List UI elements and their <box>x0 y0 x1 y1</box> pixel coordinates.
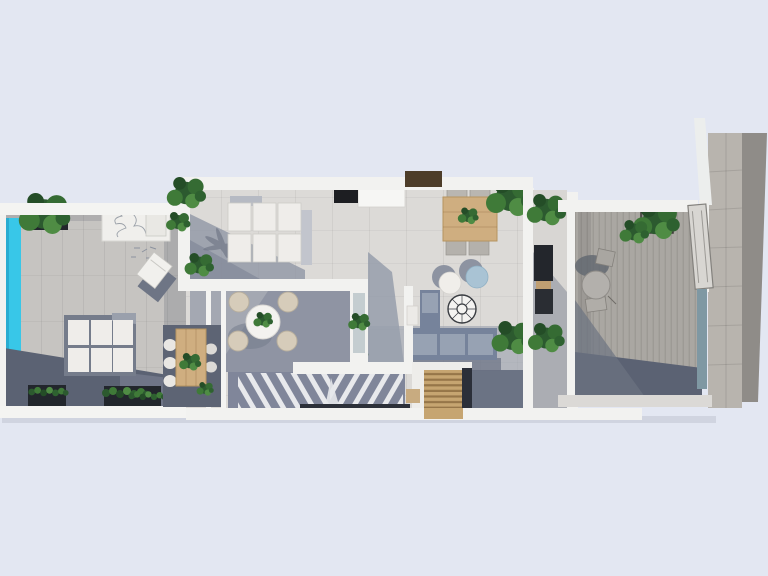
corridor-unit-1 <box>534 245 553 281</box>
right-terrace <box>558 200 713 407</box>
corridor-unit-2 <box>535 289 553 314</box>
wood-stairs-slot <box>462 368 472 412</box>
pergola-beam <box>405 171 442 187</box>
deck-top-wall <box>558 200 698 212</box>
hanging-chair <box>448 295 476 323</box>
entry-bench <box>406 389 420 403</box>
terrace-top-wall <box>0 203 186 215</box>
stone-path-floor <box>708 133 742 408</box>
deck-bottom-wall <box>558 395 712 407</box>
stair-top-wall <box>293 362 412 374</box>
sofa-side-table <box>407 306 418 325</box>
glass-mullion-2 <box>221 291 226 412</box>
patio-top-wall <box>180 279 368 291</box>
floorplan-render <box>0 0 768 576</box>
terrace-bottom-wall <box>0 406 186 418</box>
wood-dining-table-center <box>443 184 497 255</box>
planter-bottom-mid <box>102 386 166 407</box>
pouf-white <box>439 272 461 294</box>
white-sofa-set <box>228 196 312 265</box>
pouf-blue <box>466 266 488 288</box>
corridor-wood-shelf <box>536 281 551 289</box>
outdoor-sectional-sofa <box>64 313 136 376</box>
house-top-wall <box>178 177 533 190</box>
tv-cabinet <box>358 188 405 207</box>
corridor <box>527 190 578 412</box>
patio-right-wall <box>348 279 370 372</box>
house-bottom-wall <box>186 408 642 420</box>
outdoor-dining <box>163 325 221 407</box>
wood-stairs <box>406 362 472 412</box>
planter-bottom-left <box>28 385 69 407</box>
wood-stairs-threshold <box>424 408 463 419</box>
terrace-left-wall <box>0 203 6 413</box>
deck-glass-panel <box>697 289 707 389</box>
left-terrace <box>0 193 186 418</box>
